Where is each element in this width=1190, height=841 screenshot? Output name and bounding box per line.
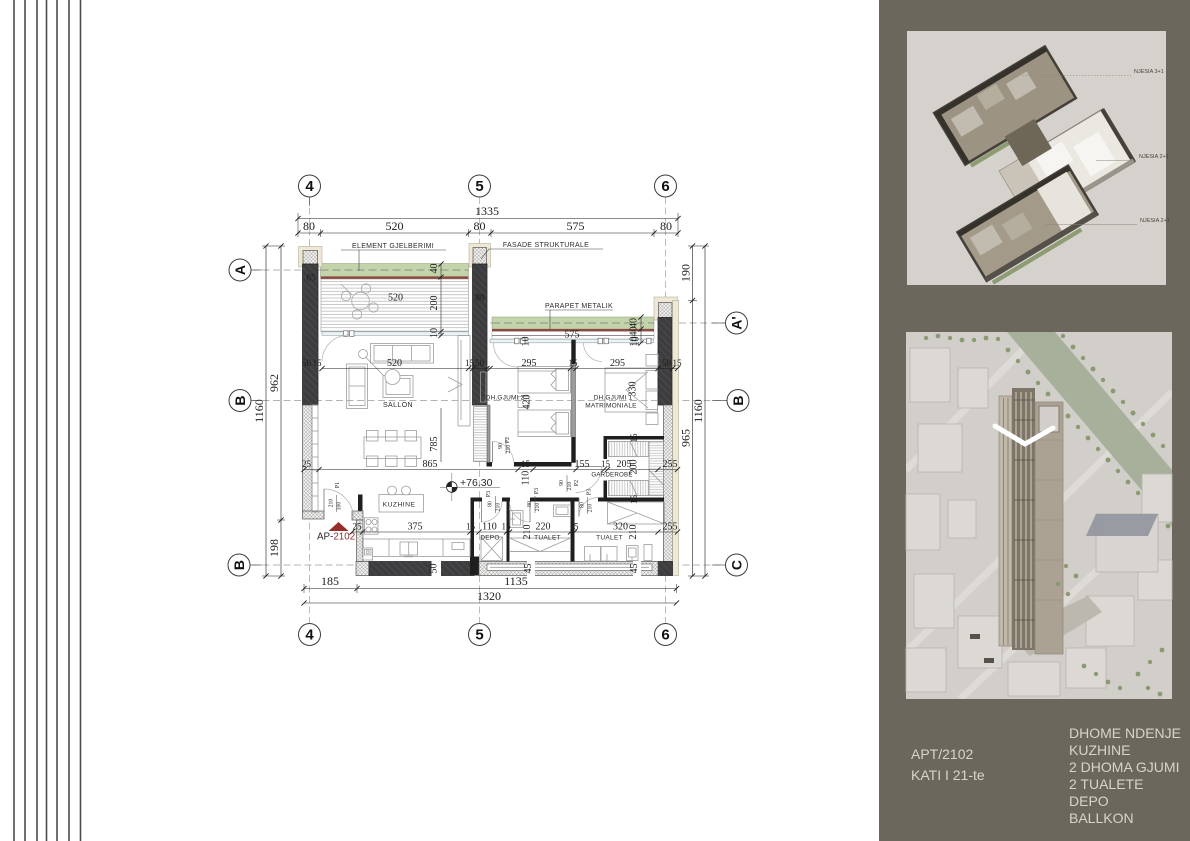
svg-text:40: 40	[429, 264, 440, 274]
svg-text:BALLKON: BALLKON	[1069, 810, 1134, 826]
svg-text:110: 110	[521, 471, 532, 486]
svg-text:295: 295	[610, 358, 625, 369]
svg-text:15: 15	[570, 522, 580, 532]
svg-text:198: 198	[267, 539, 281, 557]
svg-text:2 TUALETE: 2 TUALETE	[1069, 776, 1143, 792]
svg-text:15: 15	[521, 459, 531, 469]
svg-text:45: 45	[629, 564, 640, 574]
svg-text:15: 15	[601, 459, 611, 469]
svg-text:210: 210	[522, 525, 533, 540]
svg-text:80: 80	[474, 219, 486, 233]
svg-text:4: 4	[305, 627, 314, 644]
svg-text:255: 255	[663, 522, 678, 533]
svg-text:45: 45	[523, 564, 534, 574]
svg-text:785: 785	[429, 437, 440, 452]
svg-text:1320: 1320	[477, 589, 501, 603]
svg-text:255: 255	[663, 459, 678, 470]
svg-text:DEPO: DEPO	[480, 535, 499, 542]
svg-text:10: 10	[429, 328, 440, 338]
svg-text:TUALET: TUALET	[596, 535, 623, 542]
svg-text:575: 575	[565, 330, 580, 341]
svg-text:P1: P1	[335, 482, 341, 488]
svg-text:DH.GJUMI 1: DH.GJUMI 1	[594, 395, 633, 402]
svg-text:15: 15	[466, 522, 476, 532]
svg-text:A': A'	[729, 316, 745, 329]
svg-text:B: B	[231, 560, 247, 570]
svg-text:15: 15	[629, 495, 639, 505]
svg-text:962: 962	[267, 374, 281, 392]
svg-text:185: 185	[321, 574, 339, 588]
svg-text:110: 110	[482, 522, 497, 533]
svg-text:FASADE STRUKTURALE: FASADE STRUKTURALE	[503, 242, 589, 249]
svg-text:DH.GJUMI 2: DH.GJUMI 2	[486, 395, 525, 402]
svg-text:100: 100	[337, 502, 343, 511]
svg-text:375: 375	[408, 522, 423, 533]
svg-text:1160: 1160	[691, 399, 705, 423]
svg-text:210: 210	[628, 525, 639, 540]
svg-text:10: 10	[521, 337, 532, 347]
svg-text:520: 520	[388, 293, 403, 304]
svg-text:50: 50	[662, 358, 672, 368]
svg-text:210: 210	[496, 503, 502, 512]
svg-text:865: 865	[423, 459, 438, 470]
svg-text:210: 210	[567, 482, 573, 491]
svg-text:155: 155	[575, 459, 590, 470]
svg-text:50: 50	[302, 358, 312, 368]
svg-text:C: C	[729, 560, 745, 570]
svg-text:210: 210	[329, 499, 335, 508]
svg-text:965: 965	[679, 429, 693, 447]
svg-text:220: 220	[536, 522, 551, 533]
svg-text:1335: 1335	[475, 204, 499, 218]
svg-text:PARAPET METALIK: PARAPET METALIK	[545, 303, 613, 310]
svg-text:15: 15	[502, 522, 512, 532]
svg-text:295: 295	[522, 358, 537, 369]
svg-text:6: 6	[661, 178, 669, 195]
svg-text:SALLON: SALLON	[383, 402, 413, 409]
svg-text:210: 210	[506, 445, 512, 454]
svg-text:B: B	[730, 395, 746, 405]
svg-text:A: A	[232, 265, 248, 275]
svg-text:25: 25	[302, 459, 312, 469]
svg-text:1160: 1160	[252, 399, 266, 423]
svg-text:NJESIA 2+1: NJESIA 2+1	[1139, 154, 1169, 160]
svg-text:4: 4	[305, 178, 314, 195]
svg-text:40: 40	[629, 318, 640, 328]
svg-text:15: 15	[465, 358, 475, 368]
svg-text:AP-2102: AP-2102	[317, 532, 355, 543]
svg-text:90: 90	[559, 480, 565, 486]
svg-text:P3: P3	[587, 489, 593, 495]
svg-text:15: 15	[673, 358, 683, 368]
svg-text:15: 15	[313, 358, 323, 368]
svg-text:GARDEROBE: GARDEROBE	[591, 472, 632, 479]
svg-text:NJESIA 3+1: NJESIA 3+1	[1134, 69, 1164, 75]
svg-text:210: 210	[588, 504, 594, 513]
svg-text:2 DHOMA GJUMI: 2 DHOMA GJUMI	[1069, 759, 1179, 775]
svg-text:520: 520	[386, 219, 404, 233]
svg-text:50: 50	[429, 564, 440, 574]
svg-text:TUALET: TUALET	[534, 535, 561, 542]
svg-text:15: 15	[569, 358, 579, 368]
svg-text:P3: P3	[486, 491, 492, 497]
svg-text:MATRIMONIALE: MATRIMONIALE	[585, 403, 637, 410]
svg-text:80: 80	[580, 502, 586, 508]
svg-text:25: 25	[353, 522, 363, 532]
svg-text:5: 5	[475, 178, 483, 195]
svg-text:P3: P3	[534, 488, 540, 494]
svg-text:APT/2102: APT/2102	[911, 746, 973, 762]
svg-text:80: 80	[527, 501, 533, 507]
svg-text:80: 80	[476, 293, 486, 303]
svg-text:5: 5	[475, 627, 483, 644]
svg-text:DEPO: DEPO	[1069, 793, 1109, 809]
svg-text:80: 80	[660, 219, 672, 233]
svg-text:90: 90	[498, 443, 504, 449]
svg-text:575: 575	[567, 219, 585, 233]
svg-text:80: 80	[303, 219, 315, 233]
svg-text:80: 80	[488, 501, 494, 507]
svg-text:KATI I 21-te: KATI I 21-te	[911, 767, 985, 783]
svg-text:210: 210	[535, 503, 541, 512]
svg-text:1135: 1135	[504, 574, 528, 588]
svg-text:15: 15	[629, 433, 639, 443]
svg-text:520: 520	[387, 358, 402, 369]
svg-text:NJESIA 2+1: NJESIA 2+1	[1140, 218, 1170, 224]
svg-text:200: 200	[429, 296, 440, 311]
svg-text:65: 65	[307, 273, 317, 283]
svg-text:6: 6	[661, 627, 669, 644]
svg-text:KUZHINE: KUZHINE	[383, 502, 416, 509]
svg-text:B: B	[232, 395, 248, 405]
svg-text:DHOME NDENJE: DHOME NDENJE	[1069, 725, 1181, 741]
svg-text:+76.30: +76.30	[460, 477, 493, 489]
svg-text:50: 50	[475, 358, 485, 368]
svg-text:ELEMENT GJELBERIMI: ELEMENT GJELBERIMI	[352, 243, 434, 250]
svg-text:KUZHINE: KUZHINE	[1069, 742, 1130, 758]
svg-text:P2: P2	[574, 480, 580, 486]
svg-text:320: 320	[613, 522, 628, 533]
svg-text:190: 190	[679, 264, 693, 282]
svg-text:10: 10	[631, 337, 642, 347]
